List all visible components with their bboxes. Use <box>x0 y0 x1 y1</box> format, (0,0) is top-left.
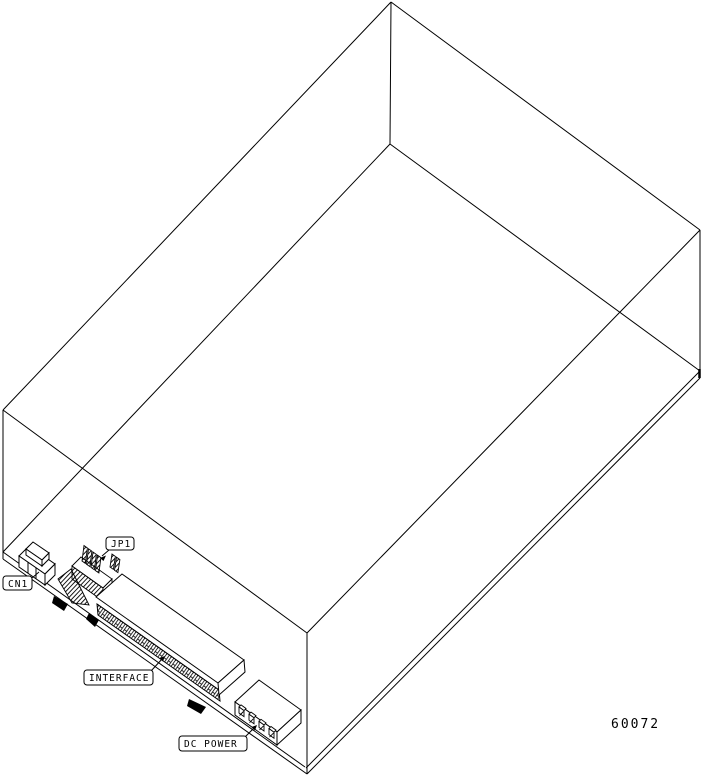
figure-number: 60072 <box>611 717 660 732</box>
drive-enclosure-drawing: CN1 JP1 INTERFACE DC POWER 60072 <box>0 0 701 779</box>
jp1-label-text: JP1 <box>111 539 131 550</box>
page-background <box>0 0 701 779</box>
cn1-label-text: CN1 <box>8 579 28 590</box>
technical-diagram: CN1 JP1 INTERFACE DC POWER 60072 <box>0 0 701 779</box>
dc-power-label-text: DC POWER <box>184 739 238 750</box>
interface-label-text: INTERFACE <box>89 673 149 684</box>
